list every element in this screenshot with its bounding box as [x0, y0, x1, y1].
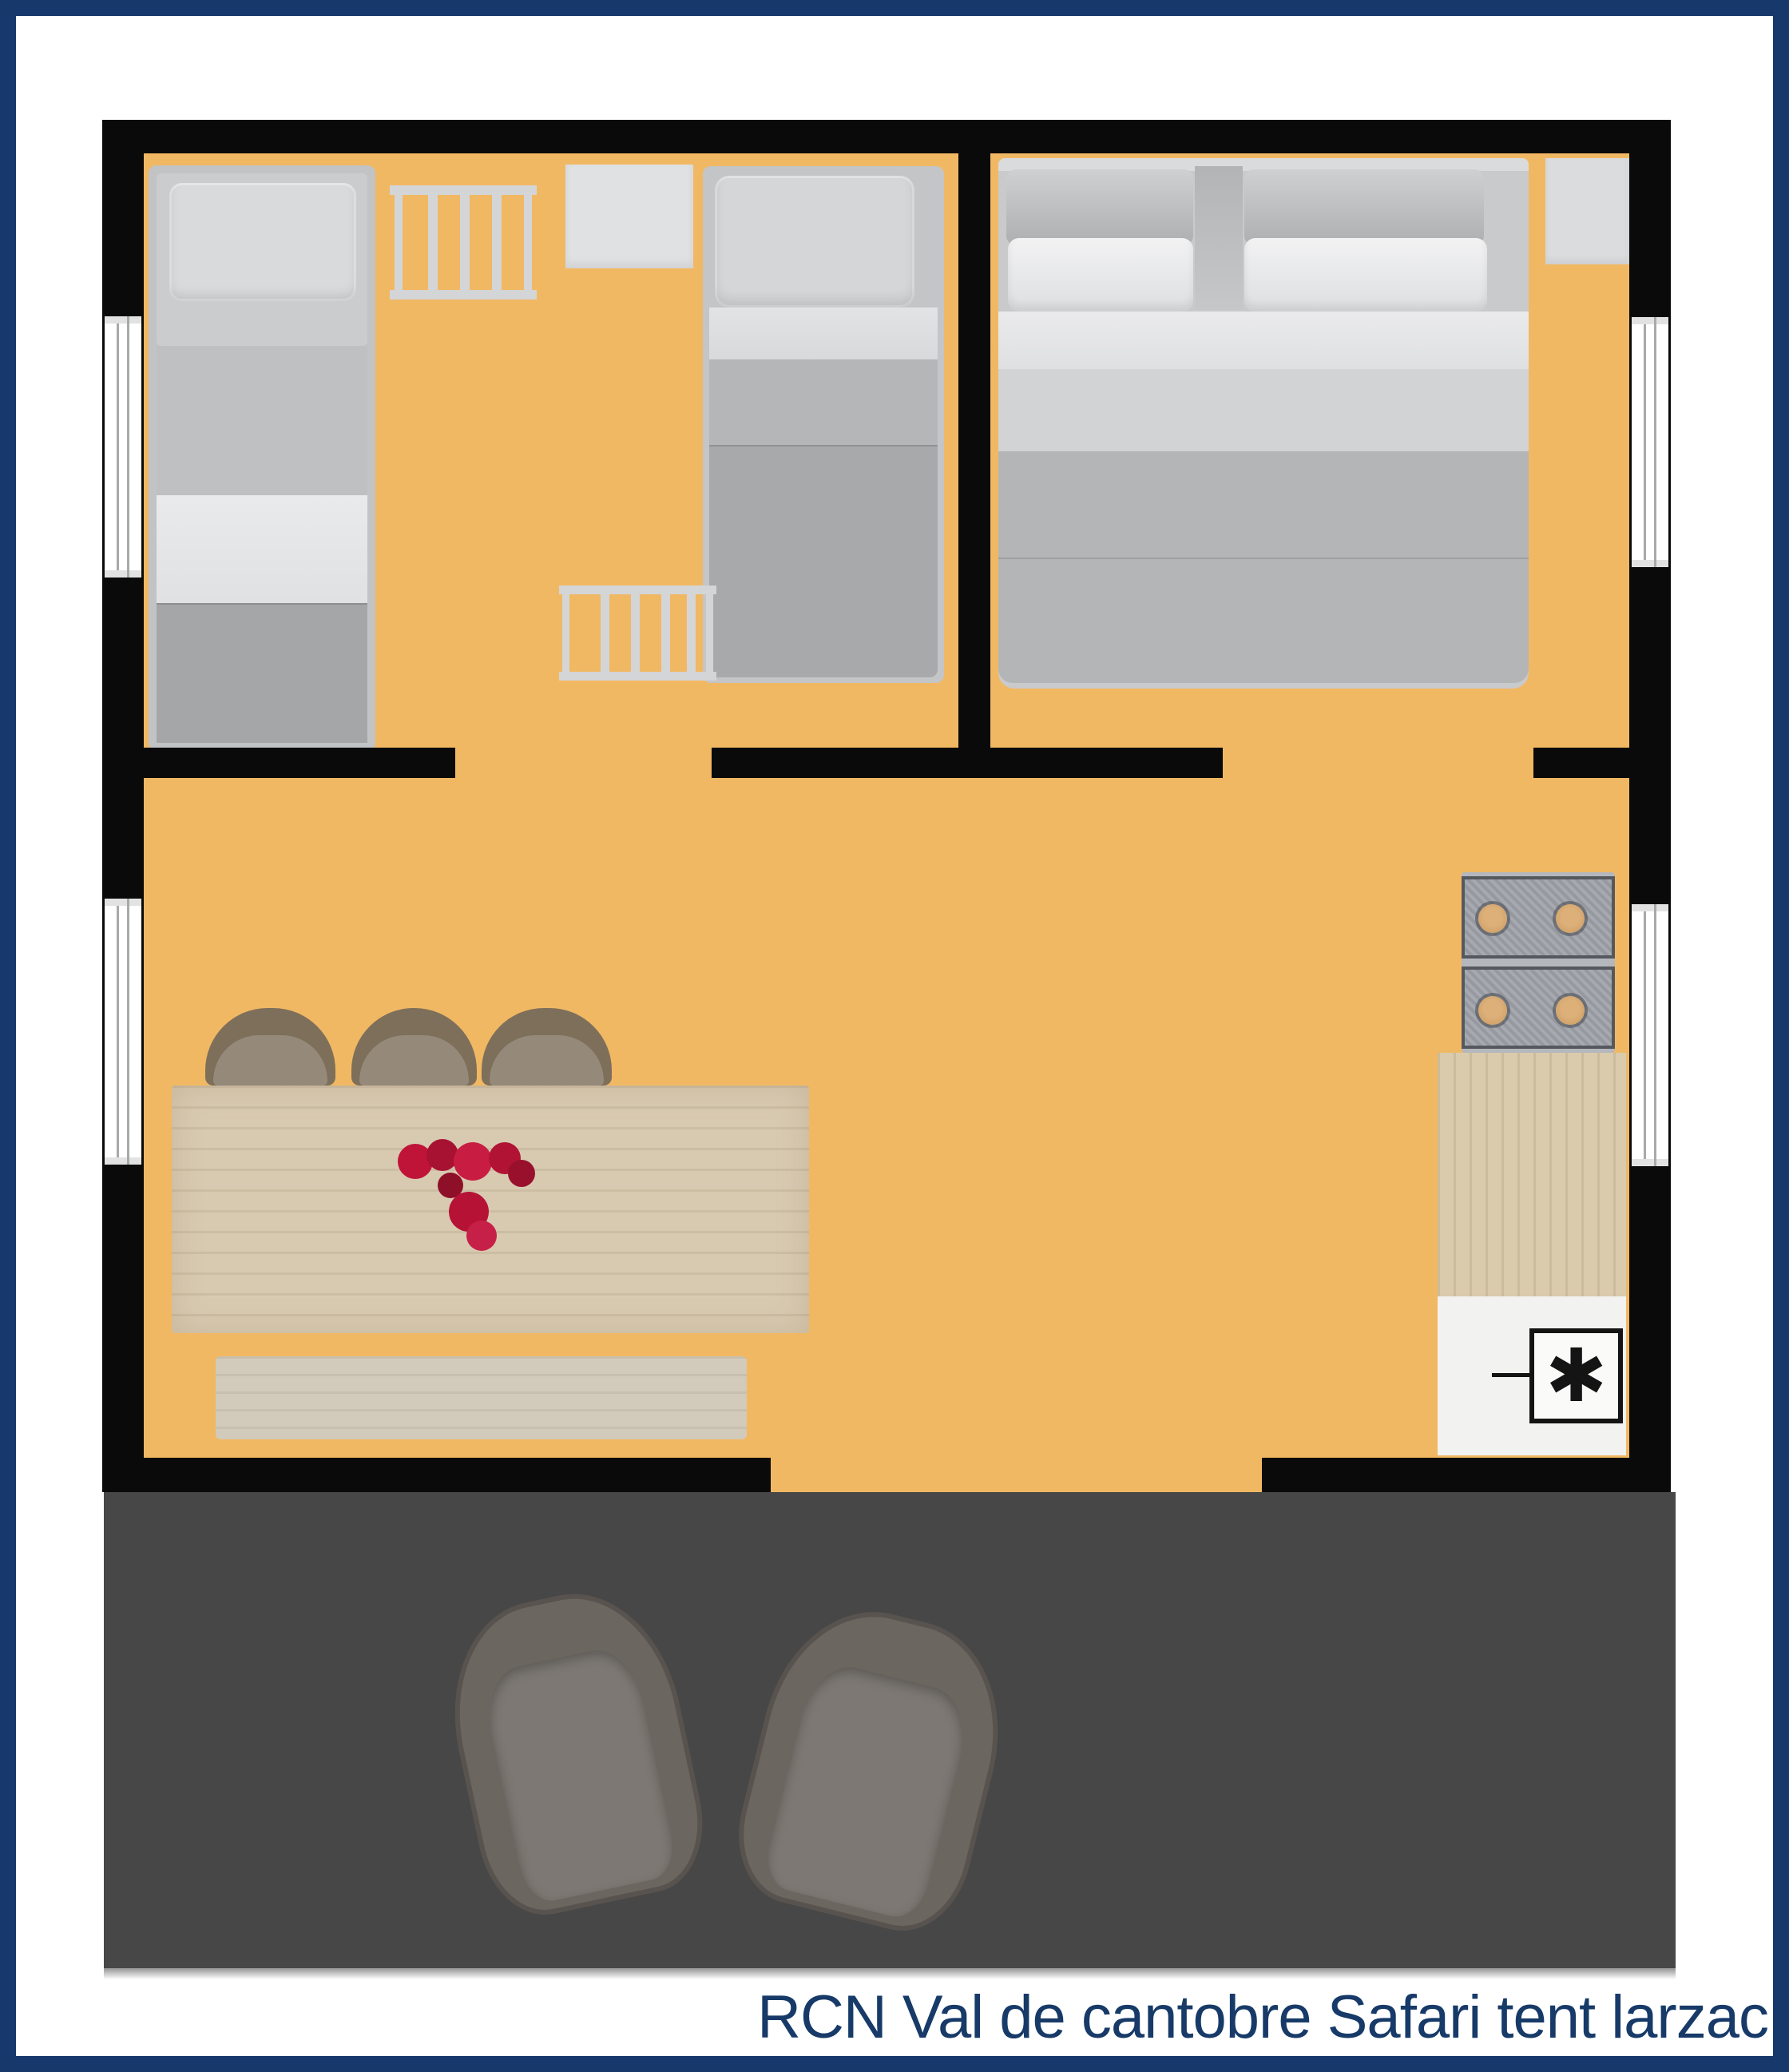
bed-sheet-fold — [157, 495, 367, 603]
deck-chair-seat — [479, 1642, 680, 1906]
burner-icon — [1478, 904, 1507, 933]
ladder-rung — [687, 593, 696, 673]
ladder-rung — [601, 593, 609, 673]
ladder-rung — [492, 193, 502, 292]
shelf-cabinet — [565, 165, 693, 268]
chair-back — [482, 1008, 612, 1086]
window-right-lower — [1632, 904, 1668, 1166]
window-sill — [1632, 560, 1668, 567]
fridge-handle — [1492, 1373, 1532, 1377]
dining-chair — [205, 1008, 335, 1086]
deck-chair-seat — [760, 1658, 975, 1923]
burner-icon — [1556, 904, 1585, 933]
ladder-rung — [460, 193, 470, 292]
wall-bottom-left — [102, 1458, 771, 1492]
window-sill — [1632, 317, 1668, 324]
bed-pillow-back-left — [1006, 169, 1193, 245]
bed-blanket — [998, 451, 1529, 683]
window-sill — [1632, 1159, 1668, 1166]
bunk-bed-left — [149, 165, 375, 751]
bed-blanket-seam — [998, 558, 1529, 559]
bunk-ladder-top — [390, 185, 537, 300]
bed-blanket-seam — [157, 603, 367, 605]
ladder-rung — [631, 593, 640, 673]
ladder-rung — [524, 185, 532, 300]
ladder-rung — [395, 185, 403, 300]
bunk-ladder-bottom — [559, 585, 716, 681]
window-sill — [1632, 904, 1668, 911]
window-sill — [105, 316, 141, 324]
bed-sheet-fold — [709, 308, 938, 359]
bed-blanket-seam — [709, 445, 938, 447]
chair-back — [351, 1008, 477, 1086]
bed-blanket — [709, 445, 938, 677]
window-sill — [105, 899, 141, 906]
wall-interior-left — [102, 748, 455, 778]
burner-icon — [1478, 996, 1507, 1025]
dining-chair — [482, 1008, 612, 1086]
fridge: ✱ — [1438, 1296, 1626, 1455]
window-left-lower — [105, 899, 141, 1165]
ladder-rung — [706, 585, 713, 681]
window-sill — [105, 1157, 141, 1165]
chair-back — [205, 1008, 335, 1086]
bed-pillow-front-left — [1008, 238, 1193, 312]
burner-icon — [1556, 996, 1585, 1025]
double-bed — [998, 158, 1529, 689]
nightstand — [1545, 158, 1629, 264]
ladder-rung — [562, 585, 569, 681]
bunk-bed-middle — [703, 166, 944, 683]
wall-bedroom-divider — [958, 153, 990, 778]
fridge-symbol-icon: ✱ — [1545, 1340, 1607, 1413]
caption-title: RCN Val de cantobre Safari tent larzac — [757, 1983, 1768, 2052]
bed-pillow-front-right — [1244, 238, 1487, 312]
window-right-upper — [1632, 317, 1668, 567]
bed-sheet — [998, 369, 1529, 451]
bed-sheet-fold — [998, 312, 1529, 369]
wall-interior-right — [1533, 748, 1671, 778]
fridge-symbol-box: ✱ — [1529, 1328, 1623, 1423]
bed-sheet — [709, 359, 938, 445]
wall-top — [102, 120, 1671, 153]
window-left-upper — [105, 316, 141, 578]
ladder-rung — [428, 193, 438, 292]
bed-pillow — [169, 183, 356, 301]
bed-pillow-back-right — [1244, 169, 1484, 245]
dining-chair — [351, 1008, 477, 1086]
window-sill — [105, 570, 141, 578]
bed-pillow — [715, 176, 914, 308]
bed-pillow-gap — [1195, 166, 1243, 310]
dining-table — [172, 1086, 809, 1333]
wall-bottom-right — [1262, 1458, 1671, 1492]
ladder-rung — [661, 593, 670, 673]
kitchen-counter — [1438, 1053, 1626, 1296]
bed-sheet — [157, 346, 367, 495]
bench — [216, 1356, 747, 1439]
stove — [1462, 872, 1615, 1053]
bed-blanket — [157, 603, 367, 743]
